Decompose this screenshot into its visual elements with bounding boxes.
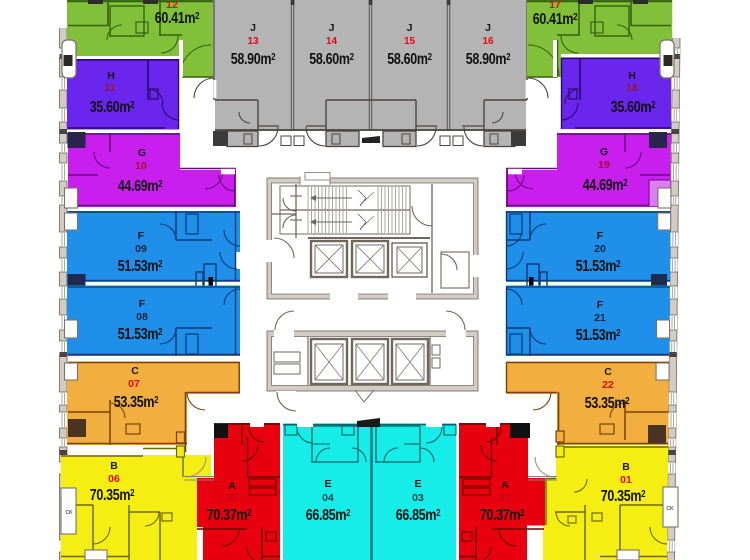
svg-text:70.35m2: 70.35m2 [601, 487, 646, 505]
svg-text:CK: CK [65, 510, 73, 516]
svg-text:70.35m2: 70.35m2 [90, 486, 135, 504]
svg-text:53.35m2: 53.35m2 [114, 393, 159, 411]
svg-text:14: 14 [326, 36, 338, 47]
svg-text:08: 08 [136, 311, 148, 323]
svg-text:16: 16 [482, 36, 494, 47]
svg-text:35.60m2: 35.60m2 [611, 98, 656, 116]
svg-text:A: A [501, 479, 509, 491]
svg-text:B: B [622, 461, 630, 473]
svg-text:35.60m2: 35.60m2 [90, 98, 135, 116]
svg-text:G: G [138, 147, 146, 159]
svg-text:58.60m2: 58.60m2 [387, 50, 432, 68]
svg-text:58.60m2: 58.60m2 [309, 50, 354, 68]
svg-text:66.85m2: 66.85m2 [306, 506, 351, 524]
svg-text:60.41m2: 60.41m2 [155, 9, 200, 27]
svg-text:F: F [597, 299, 604, 311]
svg-text:51.53m2: 51.53m2 [576, 257, 621, 275]
svg-text:70.37m2: 70.37m2 [207, 506, 252, 524]
svg-text:51.53m2: 51.53m2 [576, 326, 621, 344]
svg-text:13: 13 [247, 36, 259, 47]
svg-text:58.90m2: 58.90m2 [466, 50, 511, 68]
svg-text:J: J [250, 22, 256, 34]
svg-text:G: G [600, 146, 608, 158]
svg-text:22: 22 [602, 379, 614, 391]
svg-text:A: A [228, 480, 236, 492]
svg-text:19: 19 [598, 159, 610, 171]
svg-text:F: F [597, 230, 604, 242]
svg-text:44.69m2: 44.69m2 [583, 176, 628, 194]
svg-text:11: 11 [104, 82, 115, 94]
svg-text:03: 03 [412, 492, 424, 504]
svg-text:F: F [138, 230, 145, 242]
svg-text:44.69m2: 44.69m2 [118, 177, 163, 195]
svg-text:E: E [324, 478, 331, 490]
svg-text:04: 04 [322, 492, 334, 504]
svg-text:20: 20 [594, 243, 606, 255]
svg-text:51.53m2: 51.53m2 [118, 257, 163, 275]
svg-text:B: B [110, 460, 118, 472]
svg-text:07: 07 [128, 378, 140, 390]
svg-text:51.53m2: 51.53m2 [118, 325, 163, 343]
svg-text:66.85m2: 66.85m2 [396, 506, 441, 524]
svg-text:J: J [329, 22, 335, 34]
svg-text:02: 02 [499, 492, 511, 504]
svg-text:60.41m2: 60.41m2 [533, 10, 578, 28]
svg-text:58.90m2: 58.90m2 [231, 50, 276, 68]
svg-text:F: F [139, 298, 146, 310]
svg-text:H: H [628, 70, 636, 82]
svg-text:J: J [407, 22, 413, 34]
svg-text:J: J [485, 22, 491, 34]
svg-text:18: 18 [626, 82, 638, 94]
svg-text:09: 09 [135, 243, 147, 255]
svg-text:E: E [414, 478, 421, 490]
svg-text:06: 06 [108, 473, 120, 485]
svg-text:CK: CK [666, 506, 674, 512]
svg-text:H: H [107, 70, 115, 82]
svg-text:15: 15 [404, 36, 416, 47]
svg-text:70.37m2: 70.37m2 [480, 506, 525, 524]
svg-text:21: 21 [594, 312, 606, 324]
svg-text:C: C [131, 365, 139, 377]
svg-text:C: C [604, 366, 612, 378]
svg-text:05: 05 [226, 492, 238, 504]
svg-text:53.35m2: 53.35m2 [585, 394, 630, 412]
svg-text:10: 10 [135, 160, 147, 172]
svg-text:01: 01 [620, 474, 632, 486]
